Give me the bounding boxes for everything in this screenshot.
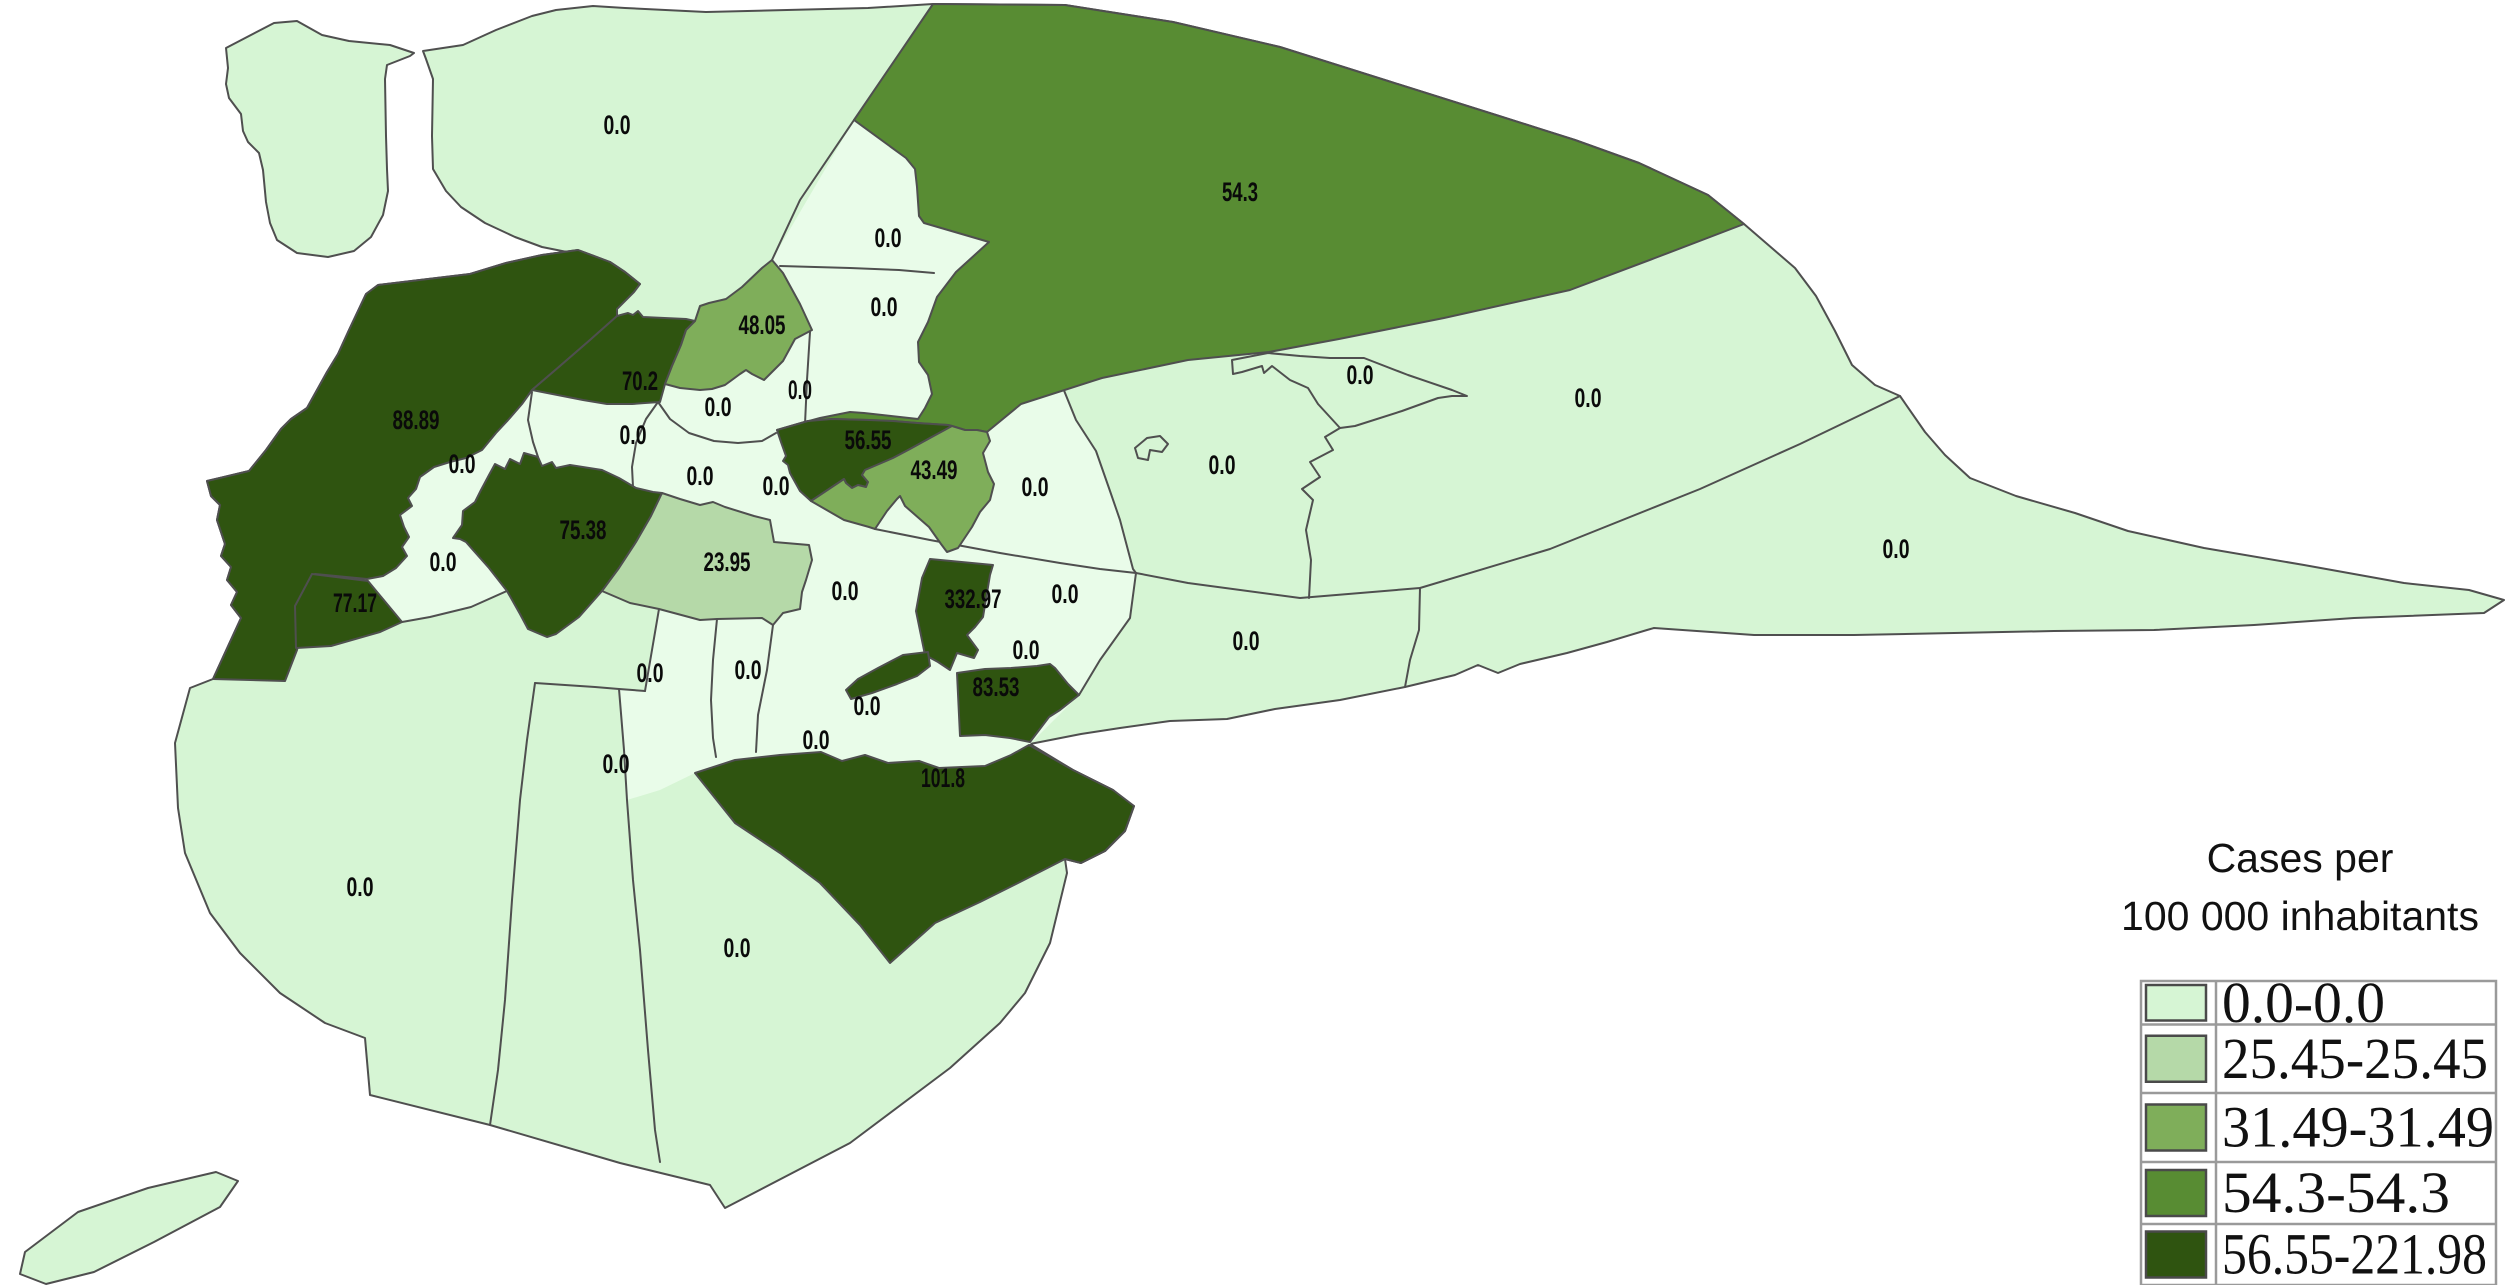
svg-text:0.0: 0.0 [449,449,476,479]
svg-text:0.0: 0.0 [705,392,732,422]
svg-text:48.05: 48.05 [739,310,786,340]
svg-text:54.3: 54.3 [1222,177,1258,207]
svg-text:0.0: 0.0 [1347,360,1374,390]
svg-text:0.0: 0.0 [788,375,812,405]
svg-text:25.45-25.45: 25.45-25.45 [2222,1026,2488,1091]
svg-text:0.0: 0.0 [763,471,790,501]
svg-text:88.89: 88.89 [393,405,440,435]
svg-text:83.53: 83.53 [973,672,1020,702]
svg-text:75.38: 75.38 [560,515,607,545]
svg-text:31.49-31.49: 31.49-31.49 [2222,1095,2494,1160]
svg-text:0.0: 0.0 [871,292,898,322]
svg-text:100 000 inhabitants: 100 000 inhabitants [2121,893,2479,939]
svg-text:0.0: 0.0 [603,749,630,779]
svg-text:101.8: 101.8 [921,763,965,793]
svg-text:0.0: 0.0 [724,933,751,963]
svg-text:70.2: 70.2 [622,366,658,396]
svg-text:0.0: 0.0 [875,223,902,253]
svg-text:0.0: 0.0 [1022,472,1049,502]
svg-text:0.0: 0.0 [803,725,830,755]
svg-text:332.97: 332.97 [945,584,1002,614]
svg-text:0.0: 0.0 [854,691,881,721]
svg-text:0.0: 0.0 [620,420,647,450]
svg-text:0.0: 0.0 [832,576,859,606]
svg-text:0.0: 0.0 [1013,635,1040,665]
svg-text:0.0: 0.0 [687,461,714,491]
svg-text:56.55: 56.55 [845,425,892,455]
svg-text:0.0: 0.0 [637,658,664,688]
svg-text:0.0: 0.0 [1209,450,1236,480]
svg-text:43.49: 43.49 [911,455,958,485]
svg-text:0.0: 0.0 [735,655,762,685]
svg-text:0.0: 0.0 [347,872,374,902]
svg-text:0.0: 0.0 [1233,626,1260,656]
svg-text:0.0: 0.0 [1575,383,1602,413]
svg-text:23.95: 23.95 [704,547,751,577]
svg-text:0.0: 0.0 [1052,579,1079,609]
svg-text:0.0: 0.0 [1883,534,1910,564]
svg-text:0.0: 0.0 [430,547,457,577]
svg-text:0.0: 0.0 [604,110,631,140]
svg-text:77.17: 77.17 [333,588,377,618]
svg-text:56.55-221.98: 56.55-221.98 [2222,1222,2487,1285]
svg-text:54.3-54.3: 54.3-54.3 [2222,1160,2450,1225]
svg-text:Cases per: Cases per [2207,835,2394,881]
